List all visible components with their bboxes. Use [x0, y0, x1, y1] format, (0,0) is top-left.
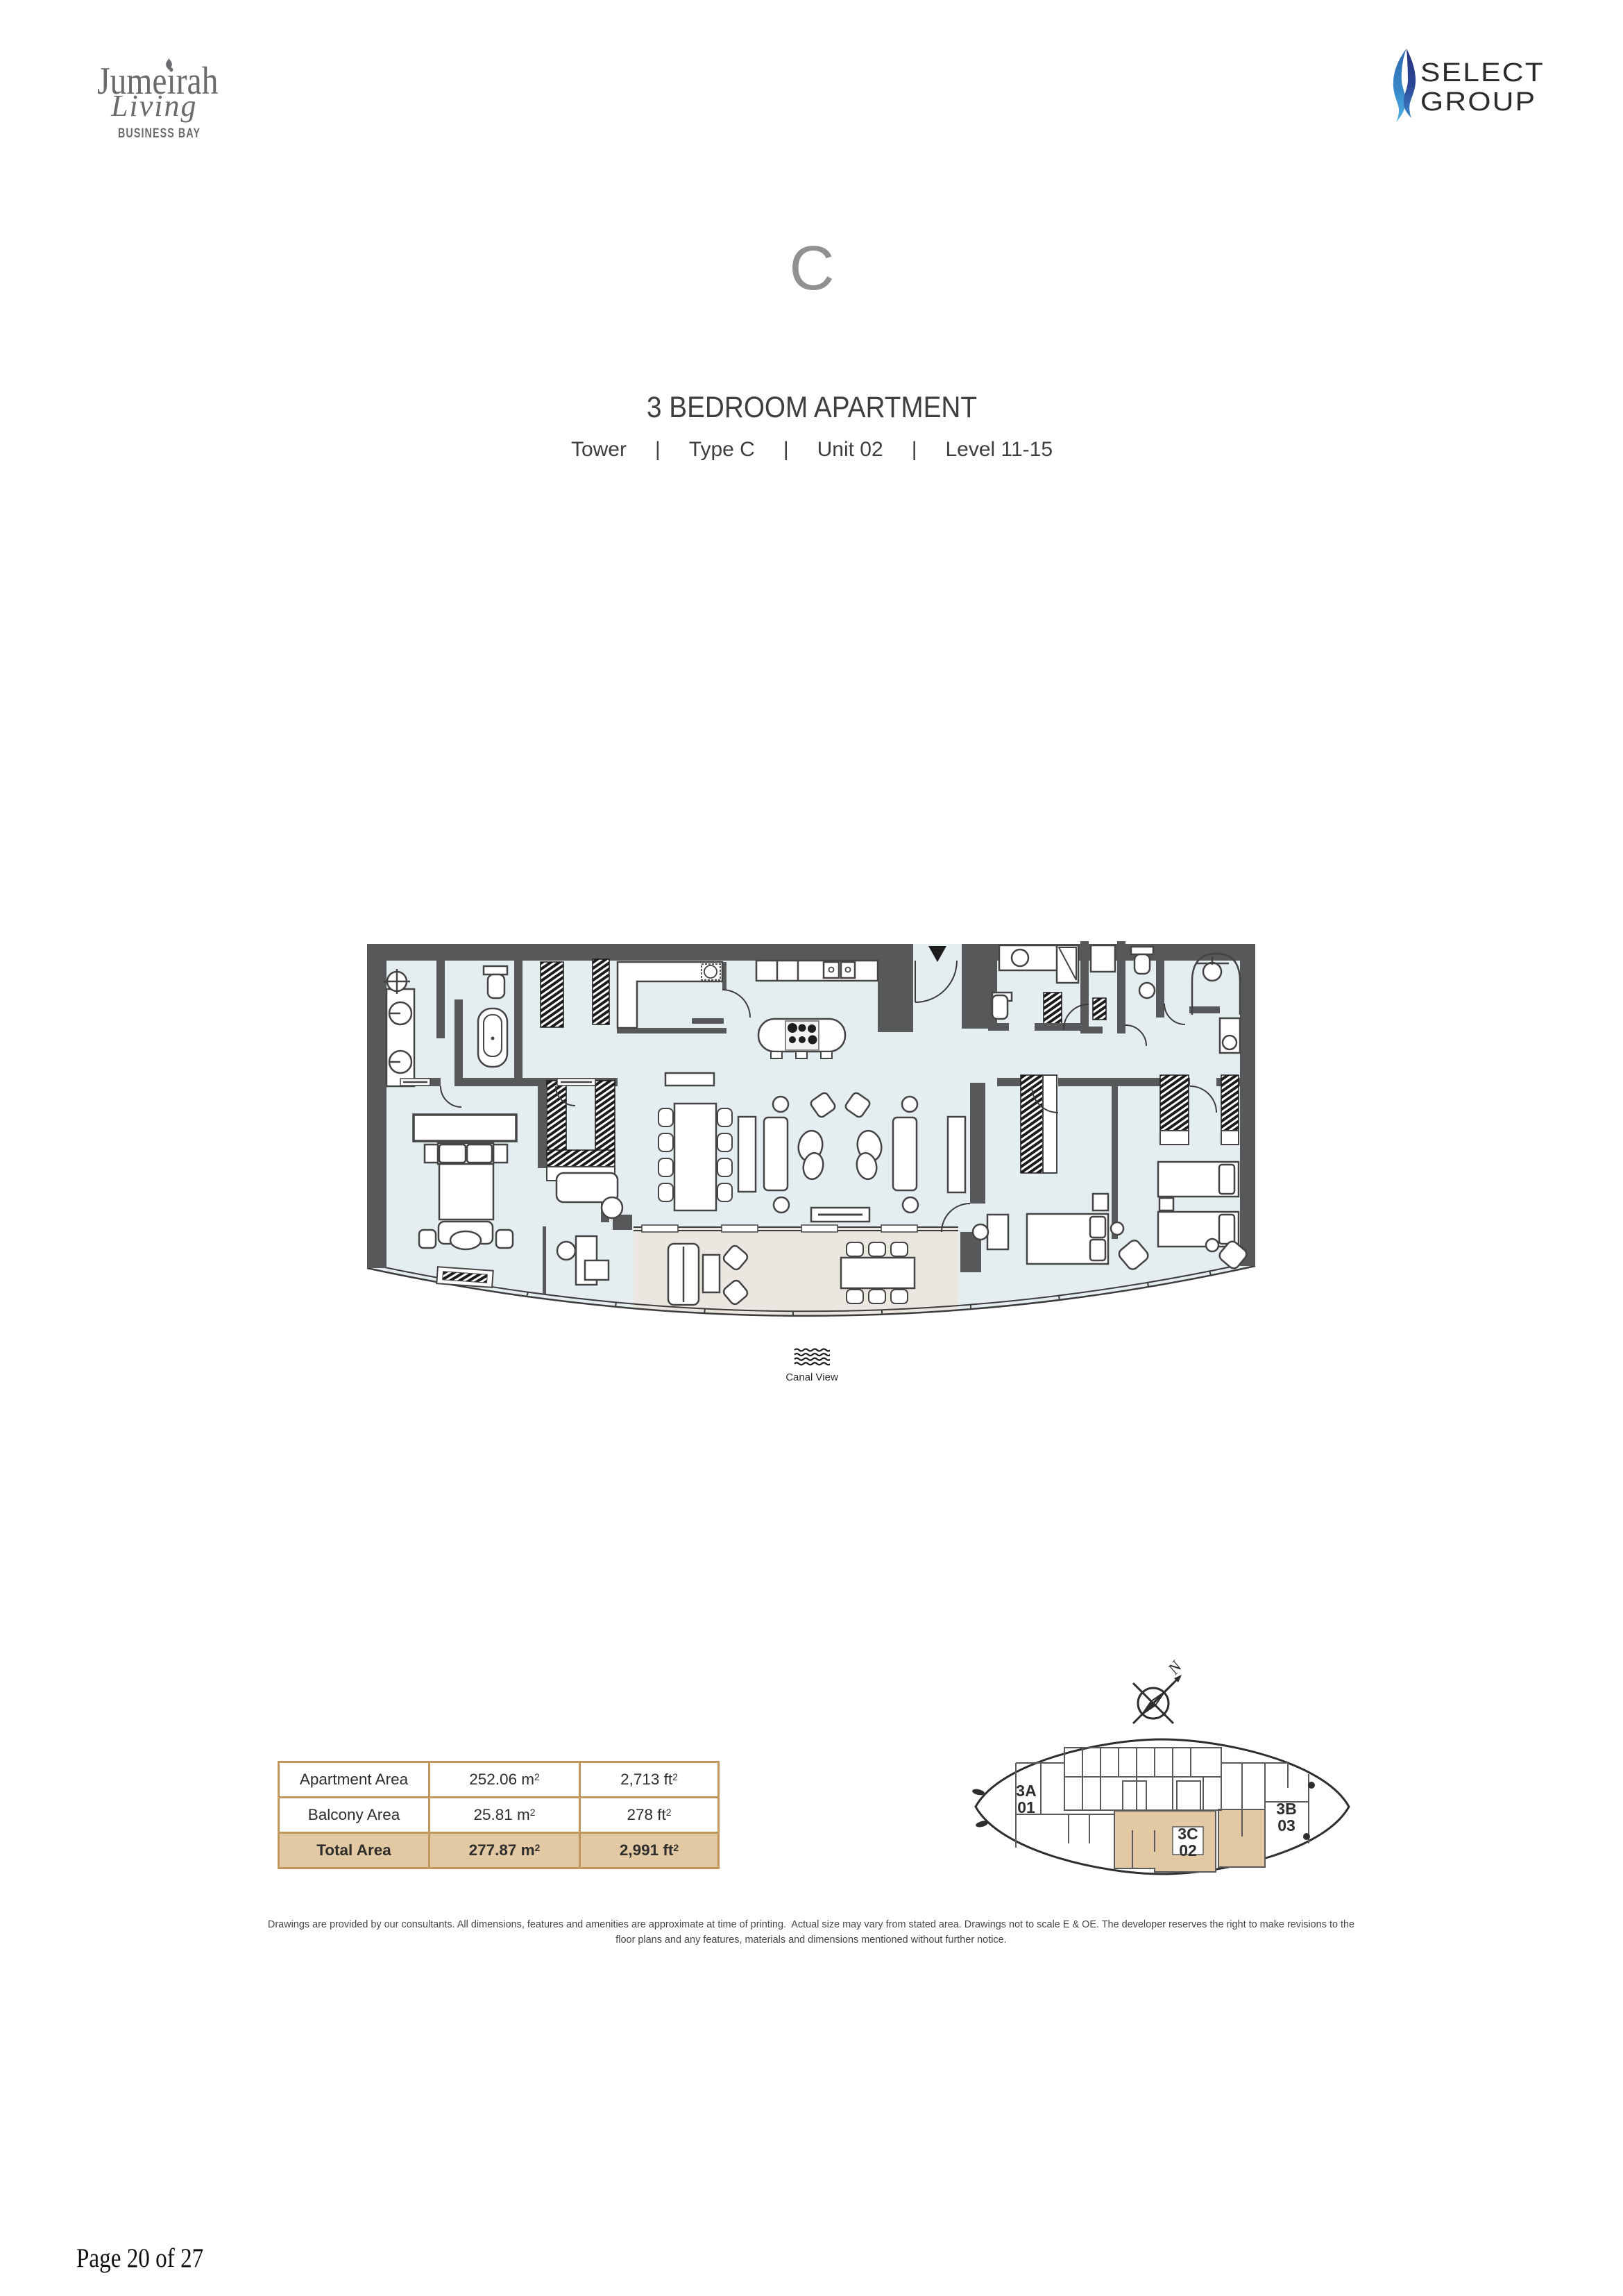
svg-text:02: 02: [1179, 1841, 1197, 1859]
svg-text:3C: 3C: [1178, 1825, 1198, 1843]
svg-text:01: 01: [1017, 1798, 1035, 1816]
svg-text:3A: 3A: [1016, 1782, 1036, 1800]
svg-text:N: N: [1164, 1659, 1187, 1679]
svg-text:3B: 3B: [1276, 1800, 1296, 1818]
svg-text:03: 03: [1277, 1816, 1295, 1834]
